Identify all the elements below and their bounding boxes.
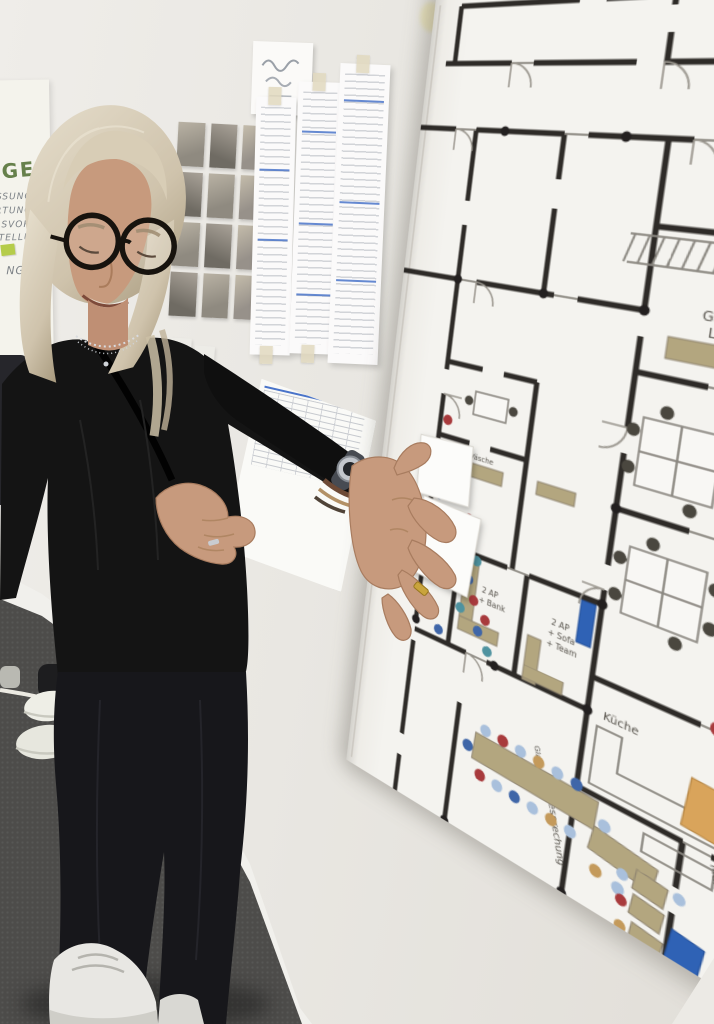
person-pointing bbox=[0, 0, 714, 1024]
palm bbox=[349, 457, 426, 589]
person-right-hand bbox=[349, 443, 456, 640]
bracelet-dark bbox=[315, 497, 345, 512]
photo-scene: GE SSUNG RTUNGEN LSVOR TELLUN NG bbox=[0, 0, 714, 1024]
pinky-finger bbox=[382, 594, 411, 640]
thumb bbox=[394, 443, 431, 475]
necklace-pendant bbox=[104, 362, 109, 367]
